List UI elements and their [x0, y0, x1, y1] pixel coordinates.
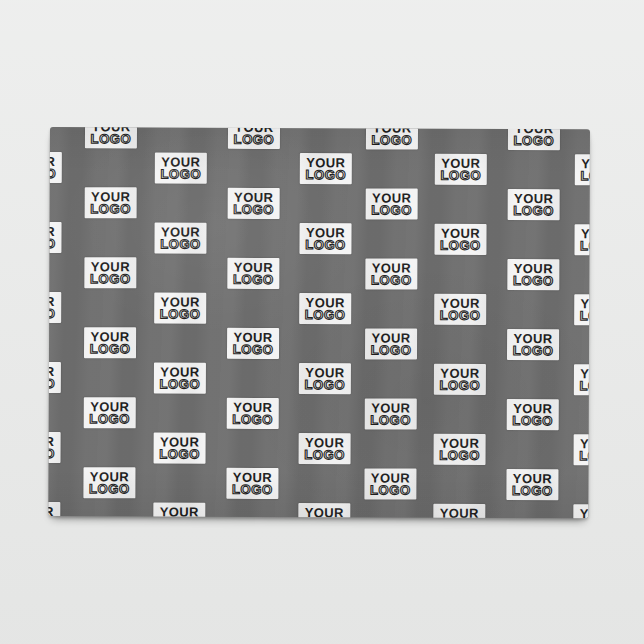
your-logo-pattern: YOURLOGOYOURLOGOYOURLOGOYOURLOGOYOURLOGO… — [50, 127, 590, 129]
badge-line-logo: LOGO — [370, 484, 411, 496]
badge-line-logo: LOGO — [90, 273, 131, 285]
your-logo-badge: YOURLOGO — [154, 432, 206, 463]
badge-line-logo: LOGO — [159, 448, 200, 460]
your-logo-badge: YOURLOGO — [84, 397, 136, 428]
badge-line-logo: LOGO — [580, 170, 590, 182]
badge-line-logo: LOGO — [160, 308, 201, 320]
badge-line-logo: LOGO — [513, 345, 554, 357]
badge-line-logo: LOGO — [48, 517, 54, 518]
your-logo-badge: YOURLOGO — [228, 127, 280, 149]
your-logo-badge: YOURLOGO — [48, 502, 60, 519]
badge-line-logo: LOGO — [48, 167, 56, 179]
your-logo-badge: YOURLOGO — [365, 328, 417, 359]
fleece-blanket: YOURLOGOYOURLOGOYOURLOGOYOURLOGOYOURLOGO… — [48, 127, 590, 518]
your-logo-badge: YOURLOGO — [366, 127, 418, 150]
badge-line-logo: LOGO — [513, 275, 554, 287]
your-logo-badge: YOURLOGO — [366, 188, 418, 219]
badge-line-logo: LOGO — [305, 379, 346, 391]
your-logo-badge: YOURLOGO — [299, 433, 351, 464]
badge-line-your: YOUR — [580, 508, 590, 518]
badge-line-logo: LOGO — [580, 240, 590, 252]
your-logo-badge: YOURLOGO — [434, 364, 486, 395]
badge-line-logo: LOGO — [370, 414, 411, 426]
your-logo-badge: YOURLOGO — [508, 127, 560, 150]
your-logo-badge: YOURLOGO — [84, 327, 136, 358]
your-logo-badge: YOURLOGO — [433, 504, 485, 519]
your-logo-badge: YOURLOGO — [154, 292, 206, 323]
badge-line-logo: LOGO — [371, 274, 412, 286]
your-logo-badge: YOURLOGO — [507, 399, 559, 430]
your-logo-badge: YOURLOGO — [574, 364, 590, 395]
your-logo-badge: YOURLOGO — [48, 362, 61, 393]
badge-line-logo: LOGO — [440, 169, 481, 181]
your-logo-badge: YOURLOGO — [48, 292, 61, 323]
badge-line-logo: LOGO — [305, 239, 346, 251]
your-logo-badge: YOURLOGO — [434, 294, 486, 325]
badge-line-logo: LOGO — [48, 447, 55, 459]
your-logo-badge: YOURLOGO — [365, 258, 417, 289]
badge-line-logo: LOGO — [513, 205, 554, 217]
your-logo-badge: YOURLOGO — [508, 189, 560, 220]
badge-line-logo: LOGO — [579, 450, 590, 462]
your-logo-badge: YOURLOGO — [83, 467, 135, 498]
your-logo-badge: YOURLOGO — [573, 504, 590, 518]
badge-line-logo: LOGO — [580, 310, 590, 322]
your-logo-badge: YOURLOGO — [227, 398, 279, 429]
badge-line-logo: LOGO — [48, 307, 55, 319]
your-logo-badge: YOURLOGO — [298, 503, 350, 518]
badge-line-logo: LOGO — [305, 169, 346, 181]
your-logo-badge: YOURLOGO — [364, 468, 416, 499]
your-logo-badge: YOURLOGO — [227, 328, 279, 359]
badge-line-logo: LOGO — [439, 449, 480, 461]
your-logo-badge: YOURLOGO — [299, 293, 351, 324]
your-logo-badge: YOURLOGO — [507, 259, 559, 290]
your-logo-badge: YOURLOGO — [299, 363, 351, 394]
your-logo-badge: YOURLOGO — [226, 468, 278, 499]
badge-line-logo: LOGO — [514, 135, 555, 147]
badge-line-logo: LOGO — [233, 203, 274, 215]
your-logo-badge: YOURLOGO — [153, 502, 205, 518]
your-logo-badge: YOURLOGO — [85, 187, 137, 218]
badge-line-logo: LOGO — [160, 168, 201, 180]
your-logo-badge: YOURLOGO — [85, 127, 137, 148]
your-logo-badge: YOURLOGO — [155, 152, 207, 183]
your-logo-badge: YOURLOGO — [435, 154, 487, 185]
badge-line-logo: LOGO — [233, 273, 274, 285]
badge-line-logo: LOGO — [232, 413, 273, 425]
badge-line-logo: LOGO — [512, 485, 553, 497]
your-logo-badge: YOURLOGO — [154, 362, 206, 393]
your-logo-badge: YOURLOGO — [84, 257, 136, 288]
your-logo-badge: YOURLOGO — [48, 152, 62, 183]
badge-line-logo: LOGO — [89, 413, 130, 425]
badge-line-logo: LOGO — [440, 309, 481, 321]
badge-line-logo: LOGO — [48, 377, 55, 389]
your-logo-badge: YOURLOGO — [48, 222, 61, 253]
your-logo-badge: YOURLOGO — [299, 223, 351, 254]
badge-line-logo: LOGO — [48, 237, 56, 249]
your-logo-badge: YOURLOGO — [434, 434, 486, 465]
your-logo-badge: YOURLOGO — [574, 224, 590, 255]
badge-line-logo: LOGO — [89, 483, 130, 495]
badge-line-logo: LOGO — [440, 379, 481, 391]
your-logo-badge: YOURLOGO — [365, 398, 417, 429]
your-logo-badge: YOURLOGO — [228, 188, 280, 219]
badge-line-logo: LOGO — [305, 309, 346, 321]
your-logo-badge: YOURLOGO — [507, 329, 559, 360]
badge-line-logo: LOGO — [371, 344, 412, 356]
your-logo-badge: YOURLOGO — [506, 469, 558, 500]
badge-line-logo: LOGO — [160, 238, 201, 250]
your-logo-badge: YOURLOGO — [154, 222, 206, 253]
badge-line-logo: LOGO — [233, 343, 274, 355]
your-logo-badge: YOURLOGO — [48, 432, 60, 463]
badge-line-logo: LOGO — [371, 204, 412, 216]
badge-line-logo: LOGO — [232, 483, 273, 495]
your-logo-badge: YOURLOGO — [227, 258, 279, 289]
badge-line-logo: LOGO — [234, 133, 275, 145]
your-logo-badge: YOURLOGO — [574, 434, 590, 465]
badge-line-logo: LOGO — [90, 203, 131, 215]
badge-line-logo: LOGO — [372, 134, 413, 146]
your-logo-badge: YOURLOGO — [575, 154, 590, 185]
badge-line-logo: LOGO — [512, 415, 553, 427]
your-logo-badge: YOURLOGO — [434, 224, 486, 255]
your-logo-badge: YOURLOGO — [574, 294, 590, 325]
badge-line-logo: LOGO — [440, 239, 481, 251]
your-logo-badge: YOURLOGO — [300, 153, 352, 184]
product-photo: YOURLOGOYOURLOGOYOURLOGOYOURLOGOYOURLOGO… — [0, 0, 644, 644]
badge-line-logo: LOGO — [160, 378, 201, 390]
badge-line-logo: LOGO — [304, 449, 345, 461]
badge-line-logo: LOGO — [91, 133, 132, 145]
badge-line-logo: LOGO — [90, 343, 131, 355]
badge-line-logo: LOGO — [580, 380, 590, 392]
